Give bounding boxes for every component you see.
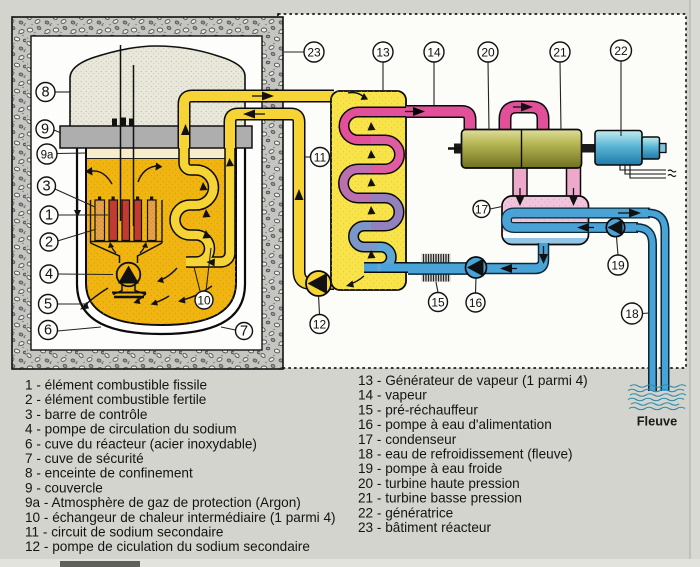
svg-text:7: 7 [240,324,248,340]
svg-text:2: 2 [45,235,53,251]
svg-text:9a - Atmosphère de gaz de prot: 9a - Atmosphère de gaz de protection (Ar… [25,495,301,510]
svg-text:10 - échangeur de chaleur inte: 10 - échangeur de chaleur intermédiaire … [25,510,336,525]
svg-text:7 - cuve de sécurité: 7 - cuve de sécurité [25,451,144,466]
svg-text:23 - bâtiment réacteur: 23 - bâtiment réacteur [358,520,491,535]
svg-text:20 - turbine haute pression: 20 - turbine haute pression [358,476,520,491]
svg-text:4: 4 [45,267,53,283]
svg-text:11: 11 [314,151,327,165]
svg-text:14: 14 [427,46,441,60]
svg-text:10: 10 [197,294,211,308]
svg-text:3: 3 [42,179,50,195]
svg-text:9 - couvercle: 9 - couvercle [25,480,103,495]
svg-text:8: 8 [41,85,49,101]
svg-text:4 - pompe de circulation du so: 4 - pompe de circulation du sodium [25,422,237,437]
svg-text:1 - élément combustible fissil: 1 - élément combustible fissile [25,378,207,393]
svg-text:18: 18 [625,307,639,321]
svg-text:5: 5 [44,297,52,313]
svg-text:17: 17 [475,203,489,217]
svg-text:22 - génératrice: 22 - génératrice [358,505,453,520]
svg-text:16 - pompe à eau d'alimentatio: 16 - pompe à eau d'alimentation [358,417,552,432]
svg-text:12: 12 [313,318,327,332]
svg-text:17 - condenseur: 17 - condenseur [358,432,457,447]
svg-text:21: 21 [553,46,567,60]
svg-text:18 - eau de refroidissement (f: 18 - eau de refroidissement (fleuve) [358,447,573,462]
svg-text:19: 19 [611,259,625,273]
svg-text:8 - enceinte de confinement: 8 - enceinte de confinement [25,466,193,481]
svg-text:Fleuve: Fleuve [637,414,678,429]
svg-text:15 - pré-réchauffeur: 15 - pré-réchauffeur [358,402,478,417]
svg-text:11 - circuit de sodium seconda: 11 - circuit de sodium secondaire [25,525,223,540]
svg-text:9a: 9a [41,150,54,162]
svg-text:2 - élément combustible fertil: 2 - élément combustible fertile [25,392,206,407]
svg-text:21 - turbine basse pression: 21 - turbine basse pression [358,491,522,506]
svg-text:14 - vapeur: 14 - vapeur [358,388,427,403]
svg-text:15: 15 [431,296,445,310]
svg-text:3 - barre de contrôle: 3 - barre de contrôle [25,407,147,422]
svg-text:6: 6 [44,323,52,339]
svg-text:13 - Générateur de vapeur (1 p: 13 - Générateur de vapeur (1 parmi 4) [358,373,588,388]
svg-text:22: 22 [614,44,628,58]
svg-text:20: 20 [481,46,495,60]
svg-text:1: 1 [45,208,53,224]
svg-text:6 - cuve du réacteur (acier in: 6 - cuve du réacteur (acier inoxydable) [25,436,257,451]
svg-text:16: 16 [469,296,483,310]
svg-text:19 - pompe à eau froide: 19 - pompe à eau froide [358,461,502,476]
svg-text:13: 13 [376,46,390,60]
svg-text:23: 23 [307,46,321,60]
svg-text:12 - pompe de ciculation du so: 12 - pompe de ciculation du sodium secon… [25,539,310,554]
svg-text:9: 9 [41,122,49,138]
